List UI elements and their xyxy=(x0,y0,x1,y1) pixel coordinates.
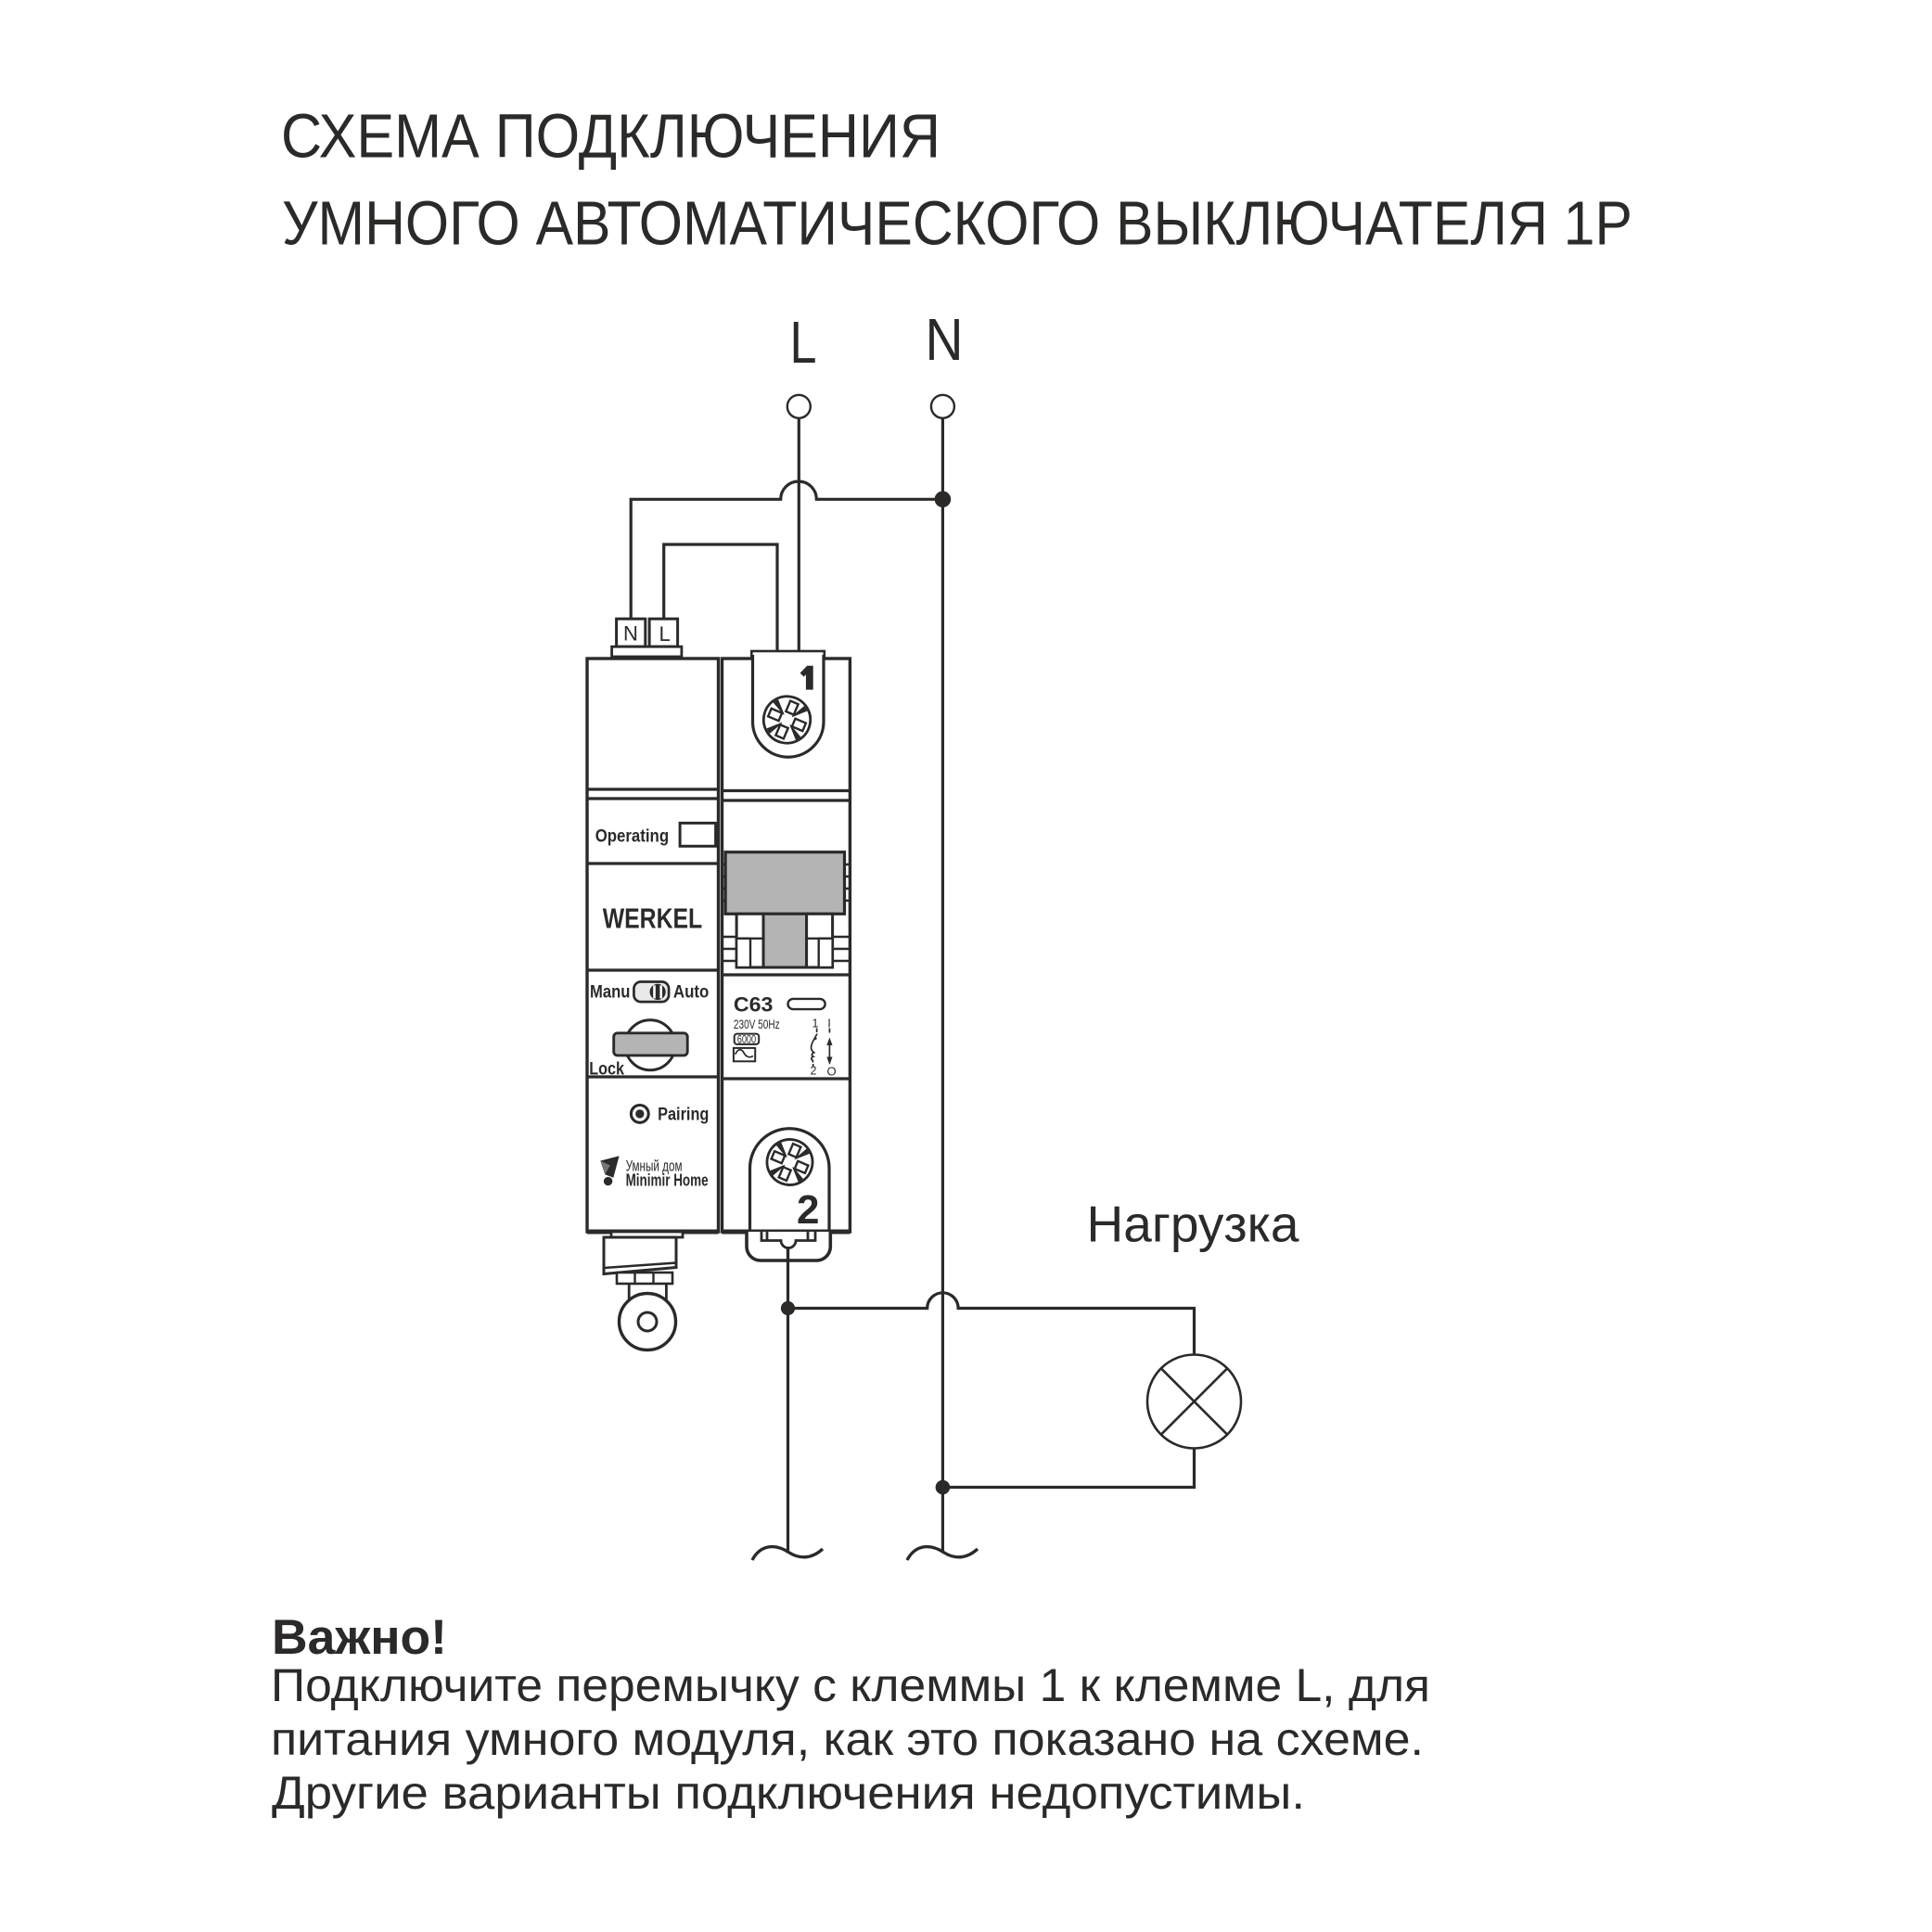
svg-text:УМНОГО АВТОМАТИЧЕСКОГО ВЫКЛЮЧА: УМНОГО АВТОМАТИЧЕСКОГО ВЫКЛЮЧАТЕЛЯ 1Р xyxy=(282,189,1632,259)
svg-text:C63: C63 xyxy=(734,993,774,1017)
svg-text:Важно!: Важно! xyxy=(272,1610,447,1665)
svg-text:230V 50Hz: 230V 50Hz xyxy=(734,1017,780,1031)
svg-text:N: N xyxy=(926,306,964,373)
svg-text:L: L xyxy=(659,622,671,646)
svg-text:WERKEL: WERKEL xyxy=(603,902,703,935)
svg-text:Lock: Lock xyxy=(589,1059,624,1080)
svg-text:Другие варианты подключения не: Другие варианты подключения недопустимы. xyxy=(272,1767,1305,1819)
svg-text:O: O xyxy=(827,1065,837,1079)
svg-text:N: N xyxy=(623,622,638,646)
svg-text:Нагрузка: Нагрузка xyxy=(1087,1196,1299,1253)
svg-text:1: 1 xyxy=(812,1017,819,1030)
svg-text:Minimir Home: Minimir Home xyxy=(626,1171,709,1190)
svg-text:Auto: Auto xyxy=(673,983,710,1003)
svg-text:Pairing: Pairing xyxy=(658,1105,709,1125)
svg-text:питания умного модуля, как это: питания умного модуля, как это показано … xyxy=(271,1713,1424,1765)
svg-text:2: 2 xyxy=(797,1187,819,1233)
svg-text:Подключите перемычку с клеммы: Подключите перемычку с клеммы 1 к клемме… xyxy=(271,1659,1430,1711)
svg-text:L: L xyxy=(790,309,817,376)
svg-text:6000: 6000 xyxy=(737,1034,757,1045)
svg-text:I: I xyxy=(827,1016,831,1030)
svg-text:Operating: Operating xyxy=(595,826,669,847)
svg-text:2: 2 xyxy=(811,1065,817,1078)
svg-text:Manu: Manu xyxy=(590,983,630,1003)
svg-text:СХЕМА ПОДКЛЮЧЕНИЯ: СХЕМА ПОДКЛЮЧЕНИЯ xyxy=(281,102,940,172)
